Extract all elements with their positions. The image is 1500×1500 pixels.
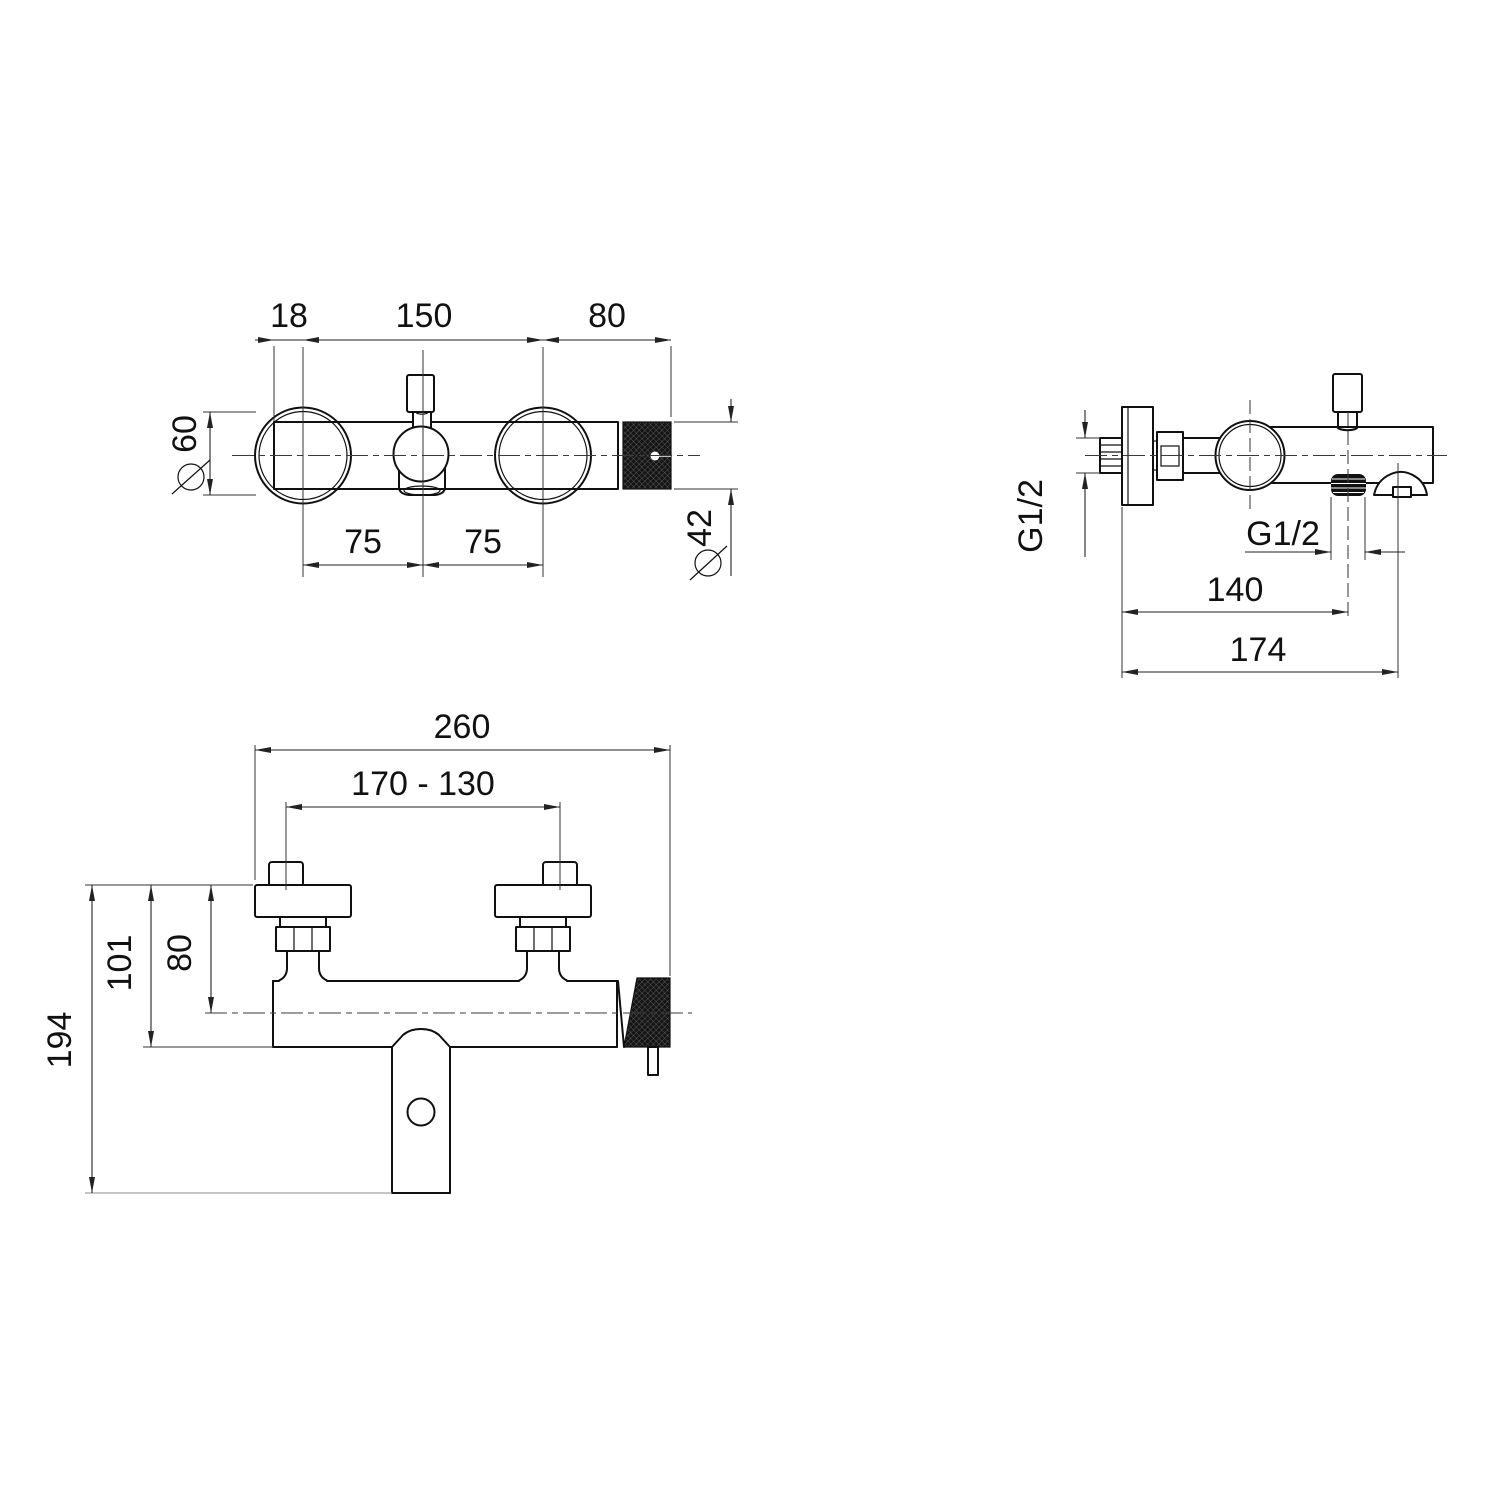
top-view-dim-dia60: 60: [166, 412, 256, 495]
front-view-right-union: [495, 862, 591, 981]
dim-label-170-130: 170 - 130: [351, 765, 495, 803]
side-view: G1/2 G1/2 140 174: [1012, 374, 1447, 678]
front-view-dim-170-130: 170 - 130: [286, 765, 560, 890]
dim-label-75-left: 75: [344, 523, 382, 561]
dim-label-g12-wall: G1/2: [1012, 479, 1050, 553]
dim-label-80-top: 80: [588, 297, 626, 335]
diameter-symbol-60: [172, 460, 210, 494]
top-view-dim-dia42: 42: [674, 399, 738, 580]
dim-label-174: 174: [1230, 631, 1287, 669]
dim-label-dia42: 42: [681, 509, 719, 547]
front-view-spout-hole: [408, 1099, 435, 1126]
front-view-left-union: [255, 862, 351, 981]
front-view-diverter-pin: [648, 1047, 658, 1075]
dim-label-194: 194: [41, 1012, 79, 1069]
dim-label-101: 101: [101, 935, 139, 992]
front-view: 260 170 - 130 194 101 80: [41, 708, 692, 1193]
top-view-dim-row: 18 150 80: [255, 297, 671, 340]
dim-label-g12-outlet: G1/2: [1246, 515, 1320, 553]
dim-label-dia60: 60: [166, 415, 204, 453]
dim-label-150: 150: [396, 297, 453, 335]
top-view-knob: [407, 375, 434, 429]
faucet-dimension-drawing: 18 150 80 75 75 60 42: [0, 0, 1500, 1500]
dim-label-140: 140: [1207, 571, 1264, 609]
side-view-dim-g12-outlet: G1/2: [1245, 497, 1405, 560]
front-view-dim-vertical: 194 101 80: [41, 885, 392, 1193]
top-view: 18 150 80 75 75 60 42: [166, 297, 738, 580]
dim-label-75-right: 75: [464, 523, 502, 561]
dim-label-260: 260: [434, 708, 491, 746]
dim-label-80-front: 80: [161, 934, 199, 972]
side-view-dim-g12-wall: G1/2: [1012, 410, 1100, 557]
diameter-symbol-42: [690, 546, 727, 580]
technical-drawing-page: 18 150 80 75 75 60 42: [0, 0, 1500, 1500]
front-view-handle: [618, 978, 670, 1075]
dim-label-18: 18: [270, 297, 308, 335]
front-view-body: [273, 981, 617, 1047]
front-view-spout: [392, 1029, 450, 1193]
top-view-valve: [394, 427, 449, 482]
